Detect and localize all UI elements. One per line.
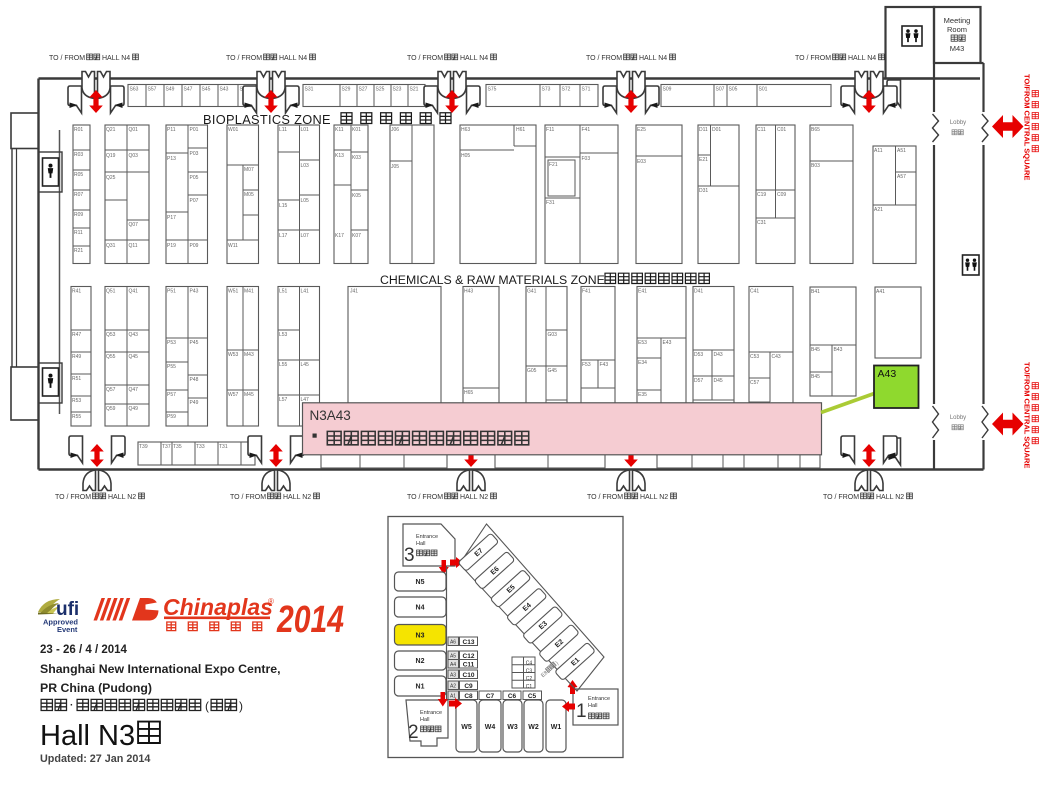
svg-text:·: · bbox=[70, 700, 73, 711]
svg-text:M41: M41 bbox=[244, 289, 254, 295]
svg-text:Q47: Q47 bbox=[129, 387, 139, 393]
svg-text:R49: R49 bbox=[72, 354, 81, 360]
svg-text:D01: D01 bbox=[712, 127, 721, 133]
svg-text:P59: P59 bbox=[167, 414, 176, 420]
svg-text:F31: F31 bbox=[546, 200, 555, 206]
svg-text:S09: S09 bbox=[663, 87, 672, 93]
svg-text:Q31: Q31 bbox=[106, 243, 116, 249]
svg-text:Q19: Q19 bbox=[106, 153, 116, 159]
svg-text:A2: A2 bbox=[450, 684, 456, 690]
svg-text:HALL N4: HALL N4 bbox=[639, 55, 667, 62]
svg-text:L11: L11 bbox=[279, 127, 287, 133]
svg-text:K05: K05 bbox=[352, 193, 361, 199]
svg-text:D45: D45 bbox=[714, 378, 723, 384]
svg-text:W01: W01 bbox=[228, 127, 239, 133]
svg-text:P11: P11 bbox=[167, 127, 176, 133]
svg-text:Q41: Q41 bbox=[129, 289, 139, 295]
svg-text:Entrance: Entrance bbox=[416, 534, 438, 540]
svg-text:A5: A5 bbox=[450, 654, 456, 660]
svg-text:TO / FROM: TO / FROM bbox=[823, 494, 859, 501]
svg-text:BIOPLASTICS ZONE: BIOPLASTICS ZONE bbox=[203, 112, 331, 127]
svg-text:W53: W53 bbox=[228, 352, 239, 358]
svg-text:TO / FROM: TO / FROM bbox=[407, 494, 443, 501]
svg-text:Q25: Q25 bbox=[106, 175, 116, 181]
svg-text:S71: S71 bbox=[582, 87, 591, 93]
svg-text:P45: P45 bbox=[190, 340, 199, 346]
svg-text:R47: R47 bbox=[72, 332, 81, 338]
svg-text:P03: P03 bbox=[190, 151, 199, 157]
svg-text:D43: D43 bbox=[714, 352, 723, 358]
svg-text:23 - 26 / 4 / 2014: 23 - 26 / 4 / 2014 bbox=[40, 644, 128, 656]
svg-text:CHEMICALS & RAW MATERIALS ZONE: CHEMICALS & RAW MATERIALS ZONE bbox=[380, 273, 605, 287]
svg-text:L51: L51 bbox=[279, 289, 288, 295]
svg-text:C11: C11 bbox=[757, 127, 766, 133]
svg-text:P17: P17 bbox=[167, 215, 176, 221]
svg-text:L45: L45 bbox=[301, 362, 310, 368]
svg-text:W5: W5 bbox=[461, 724, 472, 731]
svg-text:S57: S57 bbox=[148, 87, 157, 93]
svg-text:R53: R53 bbox=[72, 398, 81, 404]
svg-text:A21: A21 bbox=[874, 207, 883, 213]
svg-text:HALL N4: HALL N4 bbox=[460, 55, 488, 62]
svg-text:J05: J05 bbox=[391, 164, 399, 170]
svg-text:B03: B03 bbox=[811, 163, 820, 169]
svg-text:R41: R41 bbox=[72, 289, 81, 295]
svg-text:E43: E43 bbox=[663, 340, 672, 346]
svg-text:TO / FROM: TO / FROM bbox=[230, 494, 266, 501]
svg-text:G45: G45 bbox=[548, 368, 558, 374]
svg-text:TO / FROM: TO / FROM bbox=[407, 55, 443, 62]
svg-text:L55: L55 bbox=[279, 362, 288, 368]
svg-text:M45: M45 bbox=[244, 392, 254, 398]
svg-text:C10: C10 bbox=[463, 672, 475, 679]
svg-text:H05: H05 bbox=[461, 153, 470, 159]
svg-text:T31: T31 bbox=[219, 444, 228, 450]
svg-text:HALL N2: HALL N2 bbox=[876, 494, 904, 501]
svg-text:T39: T39 bbox=[139, 444, 148, 450]
svg-text:D31: D31 bbox=[699, 188, 708, 194]
svg-text:C7: C7 bbox=[486, 693, 495, 700]
svg-text:C43: C43 bbox=[772, 354, 781, 360]
svg-text:F03: F03 bbox=[582, 156, 591, 162]
svg-text:S73: S73 bbox=[542, 87, 551, 93]
svg-text:HALL N2: HALL N2 bbox=[640, 494, 668, 501]
svg-text:S45: S45 bbox=[202, 87, 211, 93]
svg-text:B45: B45 bbox=[811, 347, 820, 353]
svg-text:Event: Event bbox=[57, 625, 78, 634]
svg-text:K17: K17 bbox=[335, 233, 344, 239]
svg-text:HALL N4: HALL N4 bbox=[279, 55, 307, 62]
svg-text:S05: S05 bbox=[729, 87, 738, 93]
svg-text:W3: W3 bbox=[507, 724, 518, 731]
svg-text:S25: S25 bbox=[376, 87, 385, 93]
svg-text:H63: H63 bbox=[461, 127, 470, 133]
svg-text:K13: K13 bbox=[335, 153, 344, 159]
svg-text:PR China (Pudong): PR China (Pudong) bbox=[40, 681, 152, 695]
svg-text:E25: E25 bbox=[637, 127, 646, 133]
svg-text:TO / FROM: TO / FROM bbox=[587, 494, 623, 501]
svg-text:T33: T33 bbox=[196, 444, 205, 450]
svg-text:P49: P49 bbox=[190, 400, 199, 406]
svg-text:C9: C9 bbox=[464, 683, 473, 690]
svg-text:P55: P55 bbox=[167, 364, 176, 370]
svg-text:TO / FROM: TO / FROM bbox=[226, 55, 262, 62]
svg-text:N5: N5 bbox=[416, 579, 425, 586]
svg-text:R09: R09 bbox=[74, 212, 83, 218]
svg-text:W2: W2 bbox=[528, 724, 539, 731]
svg-text:W11: W11 bbox=[228, 243, 238, 249]
svg-text:H65: H65 bbox=[464, 390, 473, 396]
svg-text:D41: D41 bbox=[694, 289, 703, 295]
svg-text:B43: B43 bbox=[834, 347, 843, 353]
svg-text:Room: Room bbox=[947, 25, 967, 34]
svg-text:HALL N2: HALL N2 bbox=[108, 494, 136, 501]
svg-text:C01: C01 bbox=[777, 127, 786, 133]
svg-text:Q49: Q49 bbox=[129, 406, 139, 412]
svg-text:TO/FROM CENTRAL SQUARE: TO/FROM CENTRAL SQUARE bbox=[1023, 74, 1032, 180]
svg-text:B41: B41 bbox=[811, 289, 820, 295]
svg-text:R55: R55 bbox=[72, 414, 81, 420]
svg-text:N1: N1 bbox=[416, 684, 425, 691]
svg-text:Q45: Q45 bbox=[129, 354, 139, 360]
svg-text:W1: W1 bbox=[551, 724, 562, 731]
svg-text:Q59: Q59 bbox=[106, 406, 116, 412]
svg-text:C31: C31 bbox=[757, 220, 766, 226]
svg-text:W51: W51 bbox=[228, 289, 239, 295]
svg-text:L41: L41 bbox=[301, 289, 310, 295]
svg-text:A11: A11 bbox=[874, 148, 883, 154]
svg-text:3: 3 bbox=[404, 545, 415, 566]
svg-text:C53: C53 bbox=[750, 354, 759, 360]
svg-text:S47: S47 bbox=[184, 87, 193, 93]
svg-text:C5: C5 bbox=[528, 693, 537, 700]
svg-text:Updated: 27 Jan 2014: Updated: 27 Jan 2014 bbox=[40, 753, 150, 765]
svg-text:1: 1 bbox=[576, 701, 587, 722]
svg-text:P43: P43 bbox=[190, 289, 199, 295]
svg-text:R51: R51 bbox=[72, 376, 81, 382]
svg-text:M43: M43 bbox=[244, 352, 254, 358]
svg-text:K01: K01 bbox=[352, 127, 361, 133]
svg-text:T35: T35 bbox=[173, 444, 182, 450]
svg-text:T37: T37 bbox=[162, 444, 171, 450]
svg-text:Hall: Hall bbox=[416, 541, 425, 547]
svg-text:N2: N2 bbox=[416, 658, 425, 665]
svg-text:G03: G03 bbox=[548, 332, 558, 338]
svg-text:P13: P13 bbox=[167, 156, 176, 162]
svg-text:F41: F41 bbox=[582, 289, 591, 295]
svg-text:Q55: Q55 bbox=[106, 354, 116, 360]
svg-text:HALL N2: HALL N2 bbox=[460, 494, 488, 501]
svg-text:B65: B65 bbox=[811, 127, 820, 133]
svg-text:Q53: Q53 bbox=[106, 332, 116, 338]
svg-text:C3: C3 bbox=[526, 668, 533, 674]
svg-text:F21: F21 bbox=[549, 162, 558, 168]
svg-text:R05: R05 bbox=[74, 172, 83, 178]
svg-text:C19: C19 bbox=[757, 192, 766, 198]
svg-text:Q43: Q43 bbox=[129, 332, 139, 338]
svg-text:A4: A4 bbox=[450, 662, 456, 668]
svg-text:S21: S21 bbox=[410, 87, 419, 93]
svg-text:C12: C12 bbox=[463, 653, 475, 660]
svg-text:A41: A41 bbox=[876, 289, 885, 295]
svg-text:C4: C4 bbox=[526, 661, 533, 667]
svg-text:Lobby: Lobby bbox=[950, 120, 966, 126]
svg-text:F11: F11 bbox=[546, 127, 554, 133]
svg-text:N4: N4 bbox=[416, 605, 425, 612]
svg-text:L53: L53 bbox=[279, 332, 288, 338]
svg-text:L17: L17 bbox=[279, 233, 288, 239]
svg-text:HALL N2: HALL N2 bbox=[283, 494, 311, 501]
svg-text:J06: J06 bbox=[391, 127, 399, 133]
svg-text:R03: R03 bbox=[74, 152, 83, 158]
svg-text:Lobby: Lobby bbox=[950, 415, 966, 421]
svg-text:M43: M43 bbox=[950, 44, 965, 53]
svg-text:C2: C2 bbox=[526, 676, 533, 682]
svg-text:M05: M05 bbox=[244, 192, 254, 198]
svg-text:M07: M07 bbox=[244, 167, 254, 173]
svg-text:F41: F41 bbox=[582, 127, 591, 133]
svg-text:Q11: Q11 bbox=[129, 243, 138, 249]
svg-text:Hall: Hall bbox=[588, 703, 597, 709]
svg-text:Q57: Q57 bbox=[106, 387, 116, 393]
svg-text:L15: L15 bbox=[279, 203, 288, 209]
svg-text:R21: R21 bbox=[74, 248, 83, 254]
svg-text:R01: R01 bbox=[74, 127, 83, 133]
svg-text:H43: H43 bbox=[464, 289, 473, 295]
svg-text:TO / FROM: TO / FROM bbox=[795, 55, 831, 62]
svg-text:(: ( bbox=[205, 699, 209, 713]
svg-text:L01: L01 bbox=[301, 127, 310, 133]
svg-text:N3: N3 bbox=[416, 632, 425, 639]
svg-text:S63: S63 bbox=[130, 87, 139, 93]
svg-text:K07: K07 bbox=[352, 233, 361, 239]
svg-text:Meeting: Meeting bbox=[944, 16, 971, 25]
svg-text:P57: P57 bbox=[167, 392, 176, 398]
svg-text:P51: P51 bbox=[167, 289, 176, 295]
svg-text:G41: G41 bbox=[527, 289, 537, 295]
svg-text:S01: S01 bbox=[759, 87, 768, 93]
svg-text:S31: S31 bbox=[305, 87, 314, 93]
svg-text:Q01: Q01 bbox=[129, 127, 139, 133]
svg-text:C8: C8 bbox=[464, 693, 473, 700]
svg-text:S72: S72 bbox=[562, 87, 571, 93]
svg-text:F43: F43 bbox=[600, 362, 609, 368]
svg-text:P19: P19 bbox=[167, 243, 176, 249]
svg-text:N3A43: N3A43 bbox=[310, 408, 351, 423]
svg-text:Entrance: Entrance bbox=[588, 696, 610, 702]
svg-text:S23: S23 bbox=[393, 87, 402, 93]
svg-text:Q03: Q03 bbox=[129, 153, 139, 159]
svg-text:C57: C57 bbox=[750, 380, 759, 386]
svg-text:Entrance: Entrance bbox=[420, 710, 442, 716]
svg-text:L03: L03 bbox=[301, 163, 310, 169]
svg-text:L05: L05 bbox=[301, 198, 310, 204]
svg-text:S29: S29 bbox=[342, 87, 351, 93]
svg-text:S49: S49 bbox=[166, 87, 175, 93]
svg-text:P53: P53 bbox=[167, 340, 176, 346]
svg-text:2: 2 bbox=[408, 722, 419, 743]
svg-text:J41: J41 bbox=[350, 289, 358, 295]
svg-text:E03: E03 bbox=[637, 159, 646, 165]
svg-text:W57: W57 bbox=[228, 392, 239, 398]
svg-text:L07: L07 bbox=[301, 233, 310, 239]
svg-text:HALL N4: HALL N4 bbox=[102, 55, 130, 62]
svg-text:C41: C41 bbox=[750, 289, 759, 295]
svg-text:HALL N4: HALL N4 bbox=[848, 55, 876, 62]
svg-text:D53: D53 bbox=[694, 352, 703, 358]
svg-text:Hall: Hall bbox=[420, 717, 429, 723]
svg-text:TO / FROM: TO / FROM bbox=[49, 55, 85, 62]
svg-text:S07: S07 bbox=[716, 87, 725, 93]
svg-text:S27: S27 bbox=[359, 87, 368, 93]
svg-text:P48: P48 bbox=[190, 377, 199, 383]
svg-text:A57: A57 bbox=[897, 174, 906, 180]
svg-text:P05: P05 bbox=[190, 175, 199, 181]
svg-text:C09: C09 bbox=[777, 192, 786, 198]
svg-text:S43: S43 bbox=[220, 87, 229, 93]
svg-text:K03: K03 bbox=[352, 155, 361, 161]
svg-text:A51: A51 bbox=[897, 148, 906, 154]
svg-text:Chinaplas: Chinaplas bbox=[163, 594, 273, 620]
svg-text:D11: D11 bbox=[699, 127, 708, 133]
svg-text:F53: F53 bbox=[582, 362, 591, 368]
svg-text:P07: P07 bbox=[190, 198, 199, 204]
svg-text:E53: E53 bbox=[638, 340, 647, 346]
svg-text:P09: P09 bbox=[190, 243, 199, 249]
svg-text:Q07: Q07 bbox=[129, 222, 139, 228]
svg-text:C13: C13 bbox=[463, 639, 475, 646]
svg-text:E35: E35 bbox=[638, 392, 647, 398]
svg-text:H61: H61 bbox=[516, 127, 525, 133]
svg-text:S75: S75 bbox=[488, 87, 497, 93]
svg-text:K11: K11 bbox=[335, 127, 344, 133]
svg-text:TO/FROM CENTRAL SQUARE: TO/FROM CENTRAL SQUARE bbox=[1023, 362, 1032, 468]
svg-text:L47: L47 bbox=[301, 397, 310, 403]
svg-text:TO / FROM: TO / FROM bbox=[55, 494, 91, 501]
svg-text:Q21: Q21 bbox=[106, 127, 116, 133]
svg-text:E34: E34 bbox=[638, 360, 647, 366]
svg-text:Hall N3: Hall N3 bbox=[40, 720, 135, 752]
svg-text:): ) bbox=[239, 699, 243, 713]
svg-text:A6: A6 bbox=[450, 640, 456, 646]
svg-text:R11: R11 bbox=[74, 230, 83, 236]
svg-text:Shanghai New International Exp: Shanghai New International Expo Centre, bbox=[40, 662, 281, 676]
svg-text:C6: C6 bbox=[508, 693, 517, 700]
svg-text:W4: W4 bbox=[485, 724, 496, 731]
svg-text:C11: C11 bbox=[463, 662, 475, 669]
svg-text:E21: E21 bbox=[699, 157, 708, 163]
svg-text:D57: D57 bbox=[694, 378, 703, 384]
svg-text:G05: G05 bbox=[527, 368, 537, 374]
svg-text:®: ® bbox=[268, 597, 274, 606]
svg-text:C1: C1 bbox=[526, 684, 533, 690]
svg-text:B45: B45 bbox=[811, 374, 820, 380]
svg-text:Q51: Q51 bbox=[106, 289, 116, 295]
svg-text:L57: L57 bbox=[279, 397, 288, 403]
svg-text:A43: A43 bbox=[878, 368, 897, 380]
svg-text:P01: P01 bbox=[190, 127, 199, 133]
svg-text:R07: R07 bbox=[74, 192, 83, 198]
svg-text:E41: E41 bbox=[638, 289, 647, 295]
svg-text:A3: A3 bbox=[450, 673, 456, 679]
svg-text:TO / FROM: TO / FROM bbox=[586, 55, 622, 62]
svg-text:2014: 2014 bbox=[276, 599, 344, 641]
